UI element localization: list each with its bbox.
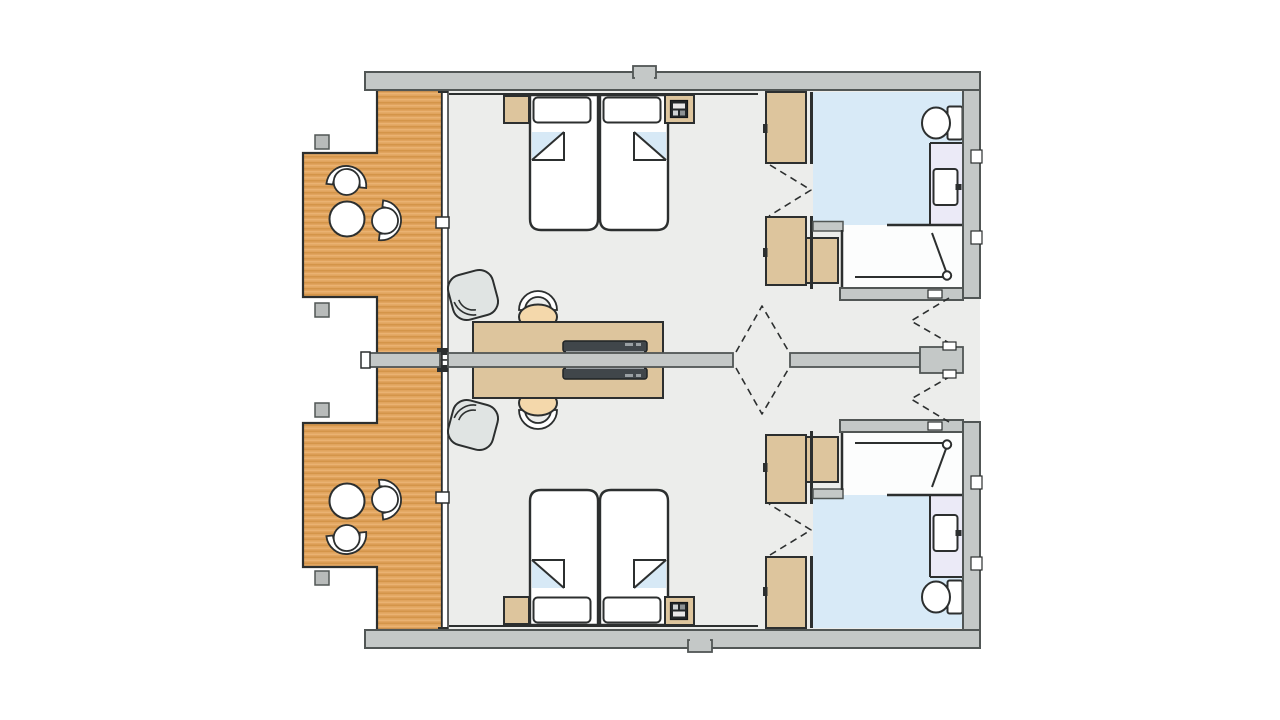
door-stop — [943, 370, 956, 378]
floor-plan — [0, 0, 1280, 720]
guest-room-top — [303, 72, 982, 360]
wall-end-post — [361, 352, 370, 368]
door-stop — [943, 342, 956, 350]
entry-wall-stub — [920, 347, 963, 373]
floor-plan-canvas — [0, 0, 1280, 720]
guest-room-bottom — [303, 360, 982, 648]
